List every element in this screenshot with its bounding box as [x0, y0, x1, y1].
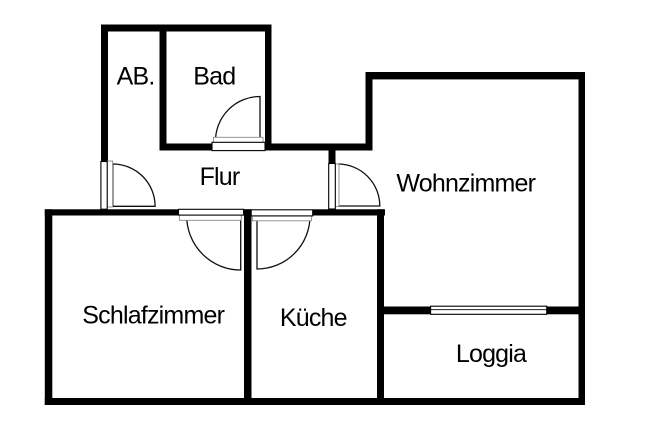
svg-text:Bad: Bad	[193, 63, 235, 91]
svg-text:Wohnzimmer: Wohnzimmer	[396, 170, 535, 198]
svg-text:Loggia: Loggia	[456, 340, 527, 368]
svg-text:AB.: AB.	[117, 63, 155, 91]
svg-text:Küche: Küche	[280, 304, 347, 332]
svg-text:Schlafzimmer: Schlafzimmer	[82, 302, 224, 330]
svg-text:Flur: Flur	[200, 163, 240, 191]
